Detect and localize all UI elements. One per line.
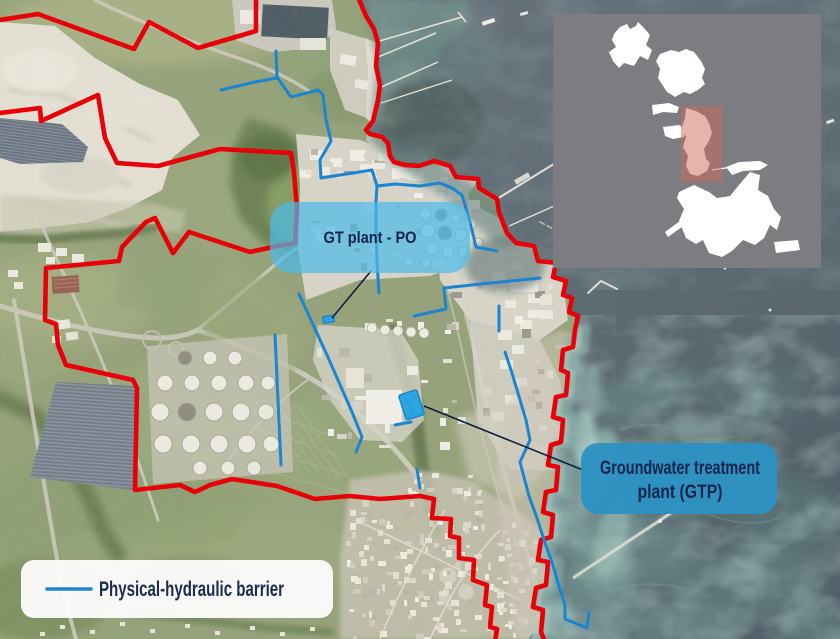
svg-text:plant (GTP): plant (GTP) [638, 482, 723, 503]
svg-text:GT plant - PO: GT plant - PO [324, 228, 417, 247]
svg-text:Groundwater treatment: Groundwater treatment [600, 458, 761, 479]
svg-text:Physical-hydraulic barrier: Physical-hydraulic barrier [99, 578, 284, 601]
